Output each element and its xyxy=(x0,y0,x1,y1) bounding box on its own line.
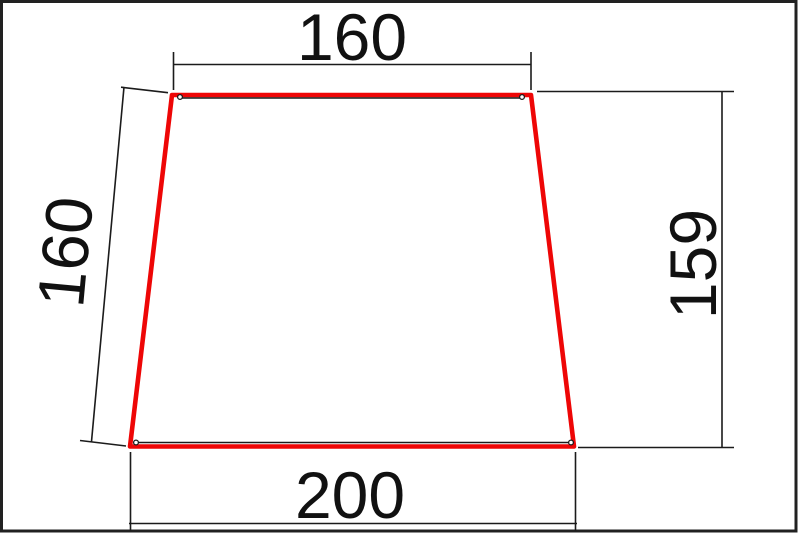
left-dim-extension-line-top xyxy=(121,87,168,93)
corner-endpoint-dot-top-right xyxy=(520,95,525,100)
bottom-dim-label: 200 xyxy=(295,458,405,532)
technical-drawing: 160 159 200 160 xyxy=(0,0,800,537)
corner-endpoint-dot-bottom-right xyxy=(569,440,574,445)
corner-endpoint-dot-top-left xyxy=(178,95,183,100)
right-dim-label: 159 xyxy=(656,209,730,319)
corner-endpoint-dot-bottom-left xyxy=(134,440,139,445)
left-dim-extension-line-bottom xyxy=(80,441,126,447)
left-dim-label: 160 xyxy=(23,194,107,310)
trapezoid-outline xyxy=(130,95,574,447)
drawing-canvas: 160 159 200 160 xyxy=(0,0,800,537)
top-dim-label: 160 xyxy=(297,0,407,74)
